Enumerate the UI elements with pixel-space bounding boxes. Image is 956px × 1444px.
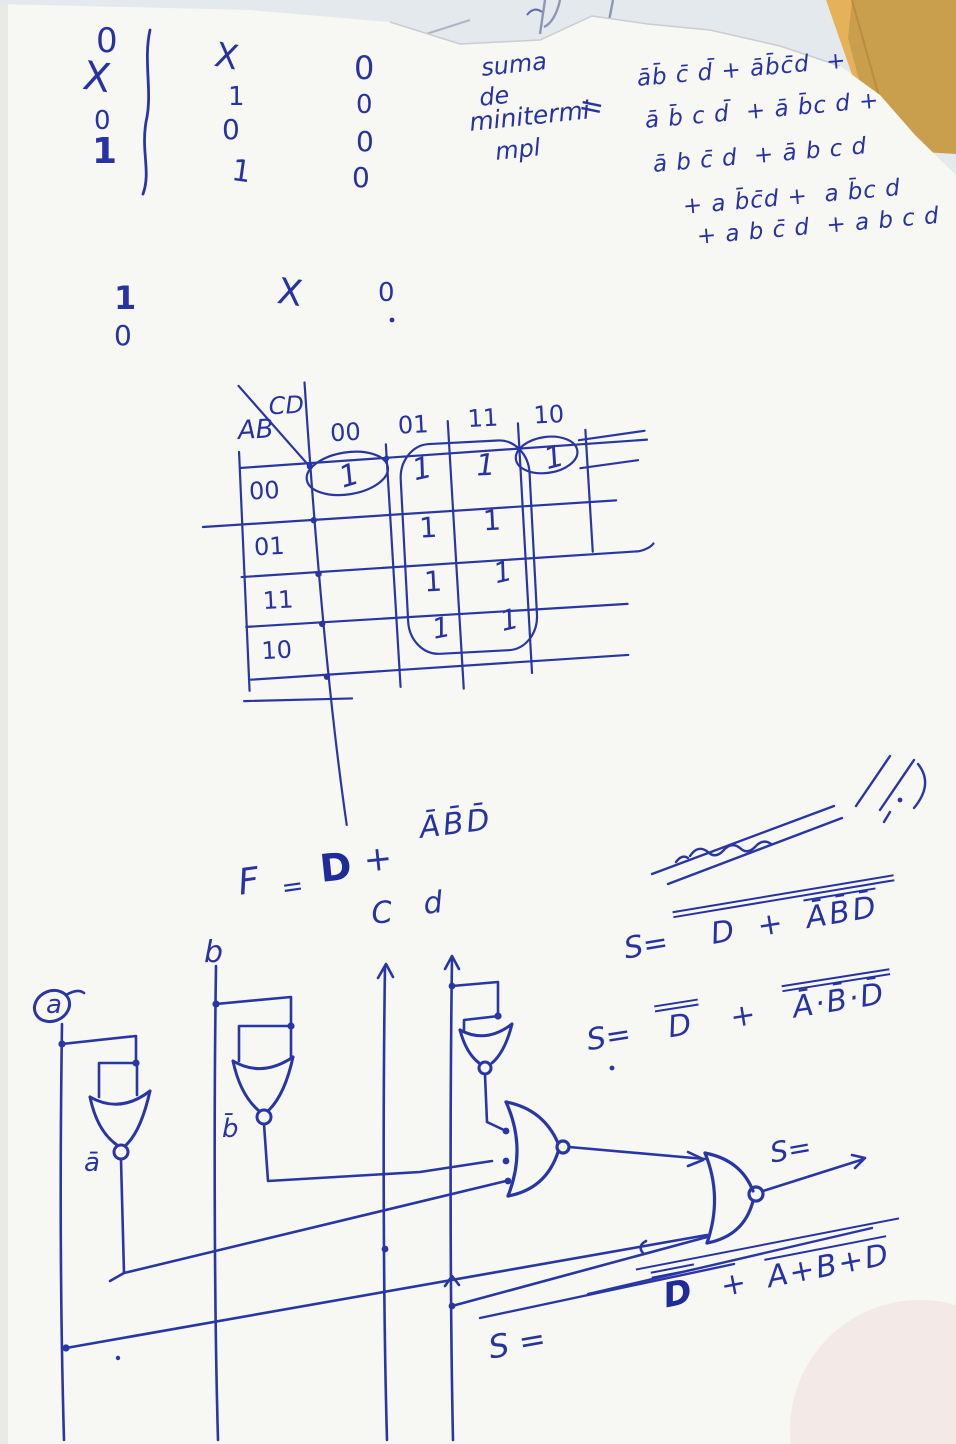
photo-of-handwritten-logic-notes: 0 X 0 1 X 1 0 1 0 0 0 0 1 0 X 0 suma de … [0, 0, 956, 1444]
ink-strokes-layer [0, 0, 956, 1444]
main-paper [0, 4, 956, 1444]
